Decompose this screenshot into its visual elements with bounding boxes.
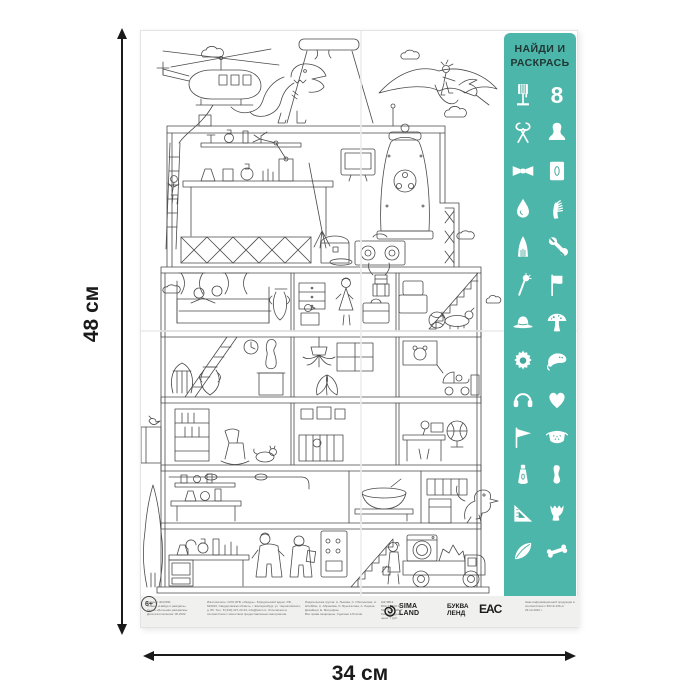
house-structure (157, 104, 489, 593)
water-drop-icon (510, 195, 536, 223)
stingray-icon (544, 347, 570, 375)
sima-land-logo: SIMALAND (399, 604, 419, 617)
kids-room-floor (141, 407, 467, 465)
sima-land-swirl-icon (383, 604, 397, 618)
torch-icon (510, 271, 536, 299)
face-mask-icon (544, 423, 570, 451)
vase-icon (544, 499, 570, 527)
tree (143, 485, 162, 587)
find-icons-grid: 8 (508, 76, 572, 570)
ground-lab (169, 531, 400, 587)
feather-icon (510, 537, 536, 565)
age-rating-note: Знак информационной продукции в соответс… (525, 601, 575, 613)
arrow-right-icon (565, 651, 576, 661)
mirror-frame-icon (544, 157, 570, 185)
kitchen-floor (169, 474, 467, 523)
arrow-down-icon (117, 624, 127, 635)
poster-illustration (141, 31, 507, 598)
height-dimension-line (121, 38, 123, 624)
floor-lamp-icon (510, 81, 536, 109)
bone-icon (544, 537, 570, 565)
flag-icon (544, 271, 570, 299)
pincers-icon (510, 119, 536, 147)
clouds (163, 46, 501, 303)
coloring-poster: НАЙДИ И РАСКРАСЬ 8 Артикул 4013931 Плака… (140, 30, 578, 628)
truck-with-washing-machine (403, 535, 485, 587)
cream-tube-icon (510, 461, 536, 489)
headphones-icon (510, 385, 536, 413)
fold-crease-vertical (360, 31, 362, 598)
comb-icon (544, 195, 570, 223)
find-and-color-panel: НАЙДИ И РАСКРАСЬ 8 (504, 33, 576, 598)
hat-icon (510, 309, 536, 337)
t-rex (231, 64, 326, 123)
height-dimension-label: 48 см (80, 284, 104, 344)
footer-credits-2: Изготовитель: ООО ИПК «Лазурь». Юридичес… (207, 601, 302, 617)
eac-mark: EAC (479, 602, 501, 616)
gear-icon (510, 347, 536, 375)
helicopter (157, 49, 279, 105)
footer-credits-1: Артикул 4013931 Плакат «Найди и раскрась… (147, 601, 202, 617)
shoehorn-icon (544, 461, 570, 489)
arrow-left-icon (143, 651, 154, 661)
bust-icon (544, 119, 570, 147)
pterodactyl-with-rider (379, 60, 497, 105)
arrow-up-icon (117, 28, 127, 39)
living-room-floor (171, 337, 479, 397)
pennant-icon (510, 423, 536, 451)
width-dimension-line (153, 654, 565, 656)
footer-credits-3: Издательская группа: А. Лыкова, С. Оболе… (305, 601, 380, 617)
panel-title: НАЙДИ И РАСКРАСЬ (510, 42, 569, 70)
svg-text:8: 8 (551, 82, 564, 108)
number-8-icon: 8 (544, 81, 570, 109)
width-dimension-label: 34 см (300, 662, 420, 686)
bow-tie-icon (510, 157, 536, 185)
rope-ladder-scientist (166, 105, 213, 249)
cloak-icon (510, 233, 536, 261)
bukva-lend-logo: БУКВАЛЕНД (447, 604, 469, 617)
wrench-icon (544, 233, 570, 261)
attic-laboratory (181, 124, 433, 265)
heart-icon (544, 385, 570, 413)
footer-strip: Артикул 4013931 Плакат «Найди и раскрась… (141, 596, 579, 627)
set-square-icon (510, 499, 536, 527)
mushroom-icon (544, 309, 570, 337)
